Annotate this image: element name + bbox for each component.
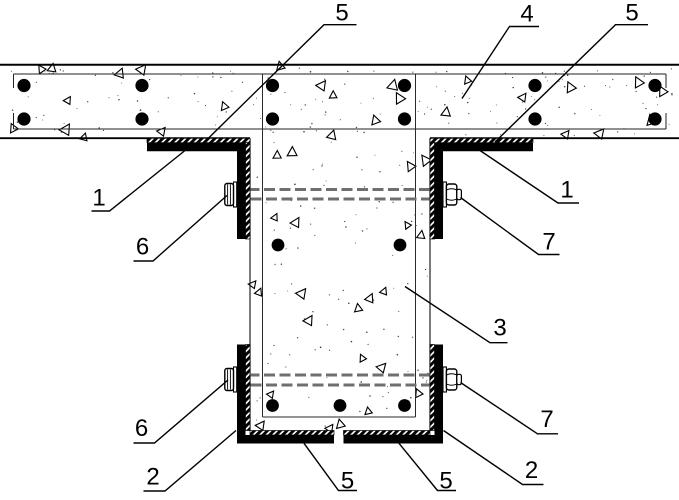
svg-text:4: 4: [520, 1, 533, 28]
svg-text:2: 2: [146, 464, 159, 491]
svg-text:5: 5: [625, 0, 638, 27]
svg-text:5: 5: [439, 468, 452, 495]
svg-text:2: 2: [525, 457, 538, 484]
svg-text:1: 1: [560, 177, 573, 204]
svg-text:5: 5: [341, 468, 354, 495]
svg-text:1: 1: [92, 185, 105, 212]
svg-text:6: 6: [135, 415, 148, 442]
svg-text:5: 5: [335, 0, 348, 27]
svg-text:3: 3: [493, 315, 506, 342]
svg-text:7: 7: [542, 229, 555, 256]
svg-text:6: 6: [136, 234, 149, 261]
svg-text:7: 7: [540, 406, 553, 433]
